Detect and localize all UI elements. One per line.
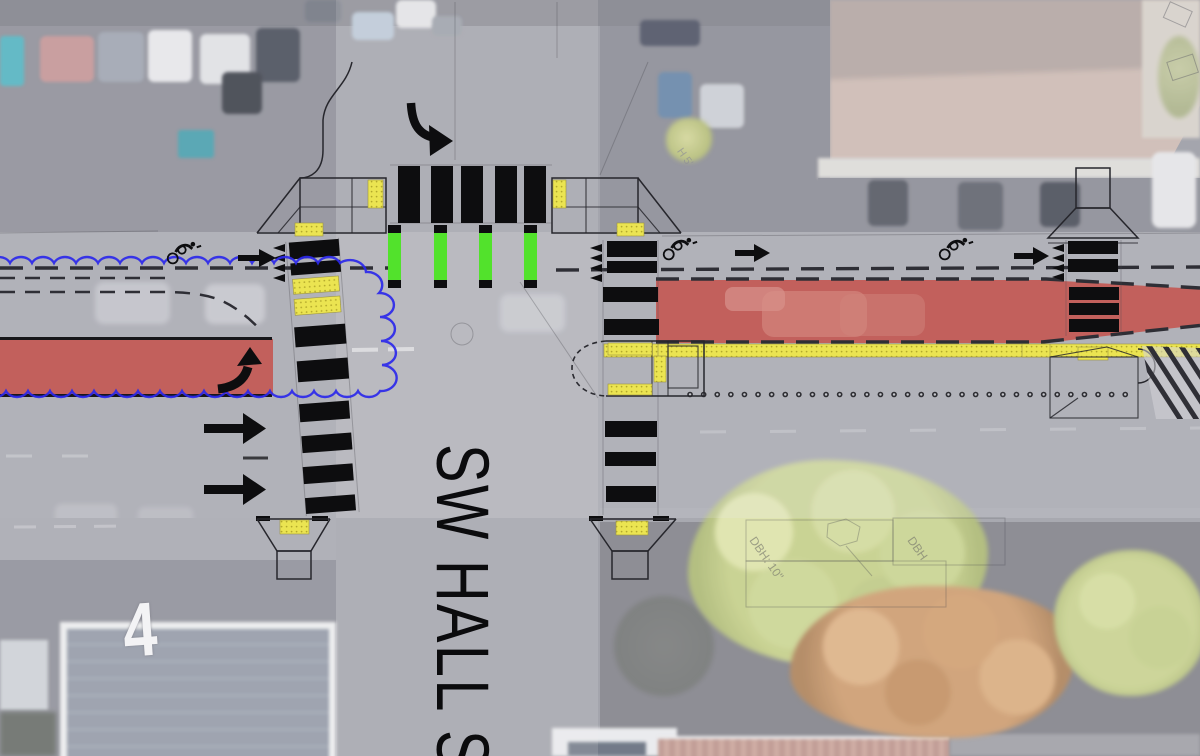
tactile-pad [553, 180, 566, 208]
striping-plan-overlay [0, 0, 1200, 756]
curb-ramp-ne [552, 178, 681, 236]
crosswalk-north [390, 165, 552, 223]
curb-ramp-nw [257, 62, 386, 236]
bike-symbol-2 [662, 237, 698, 260]
tactile-pad [280, 520, 309, 534]
lane-arrow-right-1 [238, 249, 276, 267]
tactile-pad [616, 521, 648, 535]
green-bar [524, 225, 537, 288]
green-bar [388, 225, 401, 288]
yield-teeth-east [590, 244, 602, 282]
green-bar [479, 225, 492, 288]
corner-scribble-marks [1163, 2, 1198, 81]
striping-plan-canvas: SW HALL S 4 DBH: 10" DBH H 5' [0, 0, 1200, 756]
yield-teeth-far-east [1052, 244, 1064, 281]
tree-survey-outlines [746, 518, 1005, 607]
curb-ramp-east-south [589, 516, 676, 579]
street-name-label: SW HALL S [420, 444, 505, 756]
tactile-pad [368, 180, 383, 208]
turn-right-arrow-north [411, 103, 453, 156]
lane-arrow-right-5 [204, 474, 266, 505]
curb-ramp-west-south [256, 516, 330, 579]
lane-arrow-right-2 [735, 244, 770, 262]
tactile-pad [294, 296, 341, 315]
bike-symbol-3 [938, 237, 974, 260]
crosswalk-west [256, 238, 359, 579]
tactile-pad [1022, 344, 1050, 357]
tactile-pad [293, 276, 340, 294]
lane-arrow-right-3 [1014, 247, 1049, 265]
tactile-pad [617, 223, 644, 236]
tactile-pad [608, 384, 652, 395]
tactile-pad [608, 343, 652, 355]
curb-ramp-far-east-north [1048, 168, 1138, 243]
photo-car-in-red-lane [840, 294, 925, 336]
green-bike-crossing [388, 225, 537, 288]
tactile-pad [295, 223, 323, 236]
lane-arrow-right-4 [204, 413, 266, 444]
rooftop-number: 4 [120, 586, 160, 675]
tactile-pad [654, 356, 666, 382]
green-bar [434, 225, 447, 288]
